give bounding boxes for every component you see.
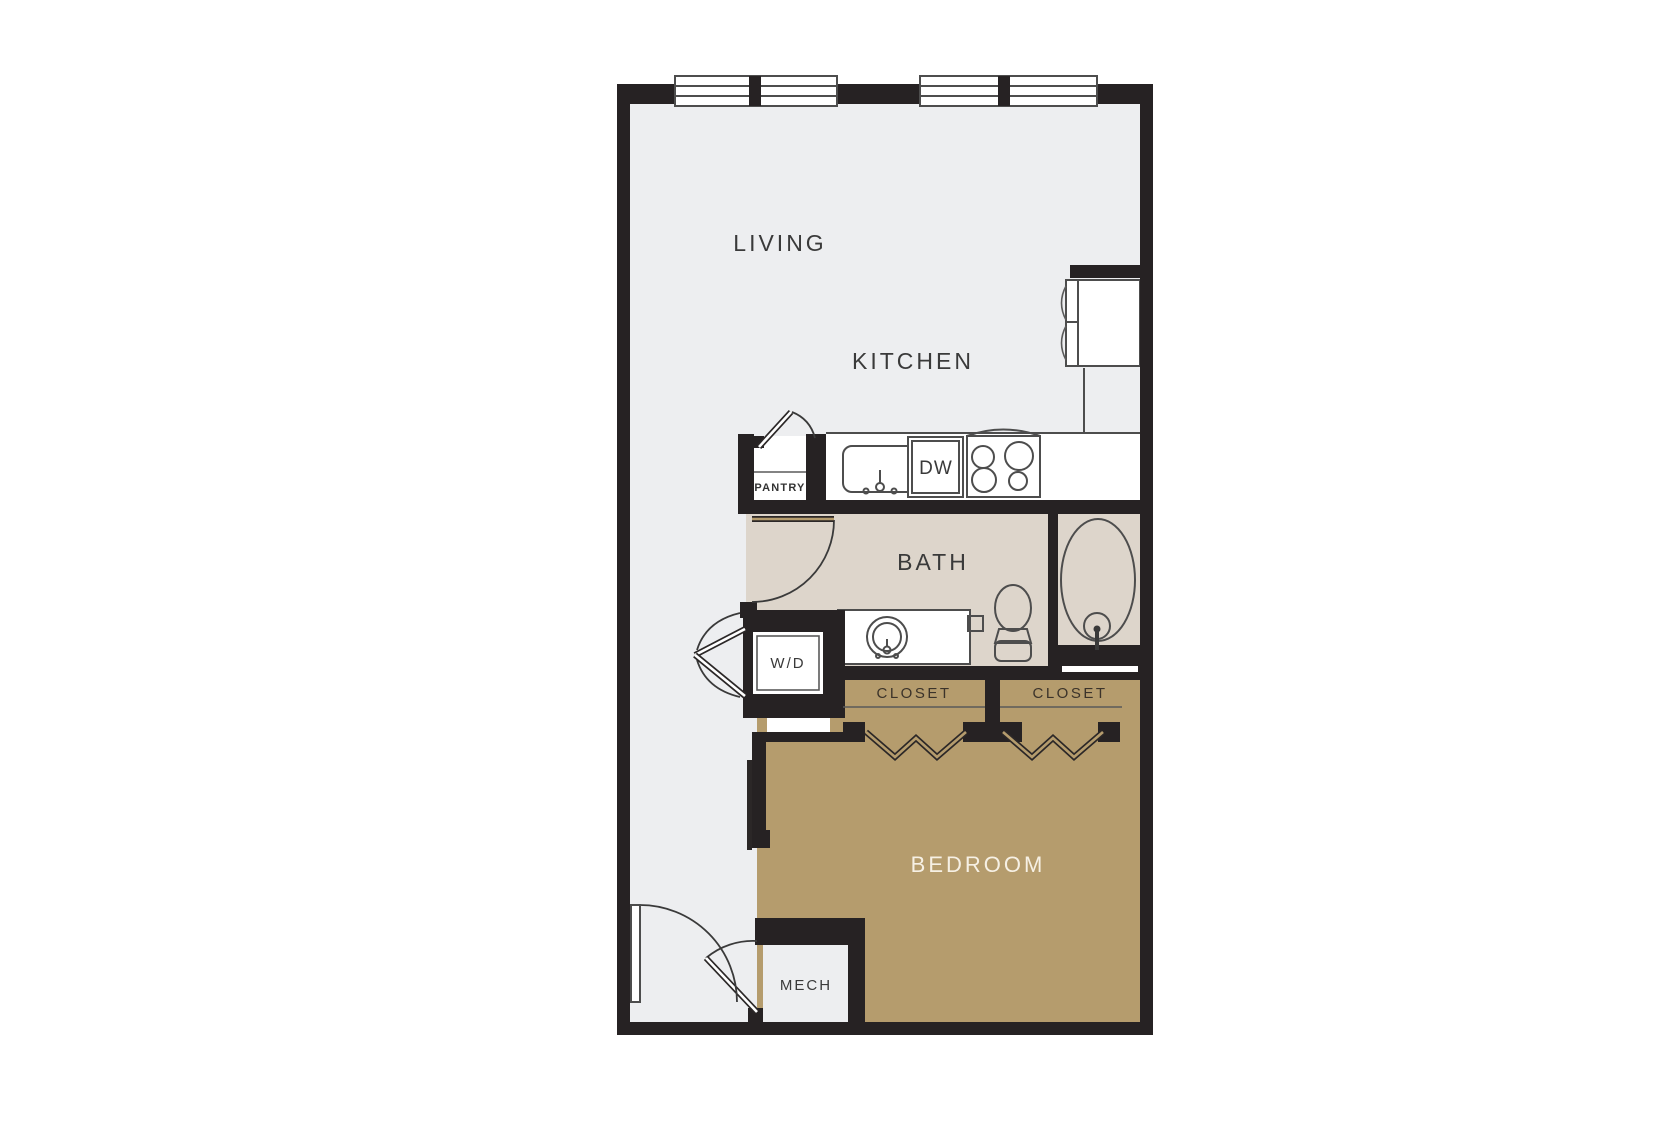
stove xyxy=(967,430,1040,498)
fridge-nook-wall xyxy=(1070,265,1140,278)
bath-vanity xyxy=(838,610,983,664)
tub-threshold xyxy=(1062,666,1138,672)
bath-label: BATH xyxy=(897,549,969,575)
window-right-mullion xyxy=(998,76,1010,106)
wall-mech-right xyxy=(848,918,865,1022)
bedroom-door xyxy=(747,760,752,850)
wall-tub-bottom xyxy=(1048,645,1140,666)
entry-door-leaf xyxy=(631,905,640,1002)
wall-tub-divider xyxy=(1048,514,1058,648)
kitchen-label: KITCHEN xyxy=(852,348,974,374)
floors xyxy=(630,104,1140,1022)
closet-left-label: CLOSET xyxy=(876,685,951,702)
pantry-label: PANTRY xyxy=(754,482,805,494)
floor-plan: DW xyxy=(0,0,1678,1122)
dishwasher-label: DW xyxy=(919,458,953,479)
wall-right xyxy=(1140,84,1153,1035)
wall-kitchen-bath xyxy=(740,500,1140,514)
closet-right-label: CLOSET xyxy=(1032,685,1107,702)
wd-label: W/D xyxy=(770,655,805,672)
window-left-mullion xyxy=(749,76,761,106)
sink-basin xyxy=(843,446,918,492)
bedroom-label: BEDROOM xyxy=(911,852,1046,877)
wall-bedroom-top-left xyxy=(752,732,865,742)
wall-closet-divider xyxy=(985,680,1000,742)
vanity-counter xyxy=(838,610,970,664)
dishwasher: DW xyxy=(908,437,963,497)
bedroom-door-leaf xyxy=(747,760,752,850)
wall-bottom xyxy=(617,1022,1153,1035)
refrigerator xyxy=(1062,265,1141,366)
floor-plan-canvas: DW xyxy=(0,0,1678,1122)
kitchen-sink xyxy=(843,446,918,494)
living-label: LIVING xyxy=(733,230,826,256)
mech-label: MECH xyxy=(780,977,832,994)
hall-entry-floor xyxy=(630,500,757,1022)
wd-niche xyxy=(767,718,830,732)
wall-left xyxy=(617,84,630,1035)
closet1-jamb-right xyxy=(963,722,985,742)
